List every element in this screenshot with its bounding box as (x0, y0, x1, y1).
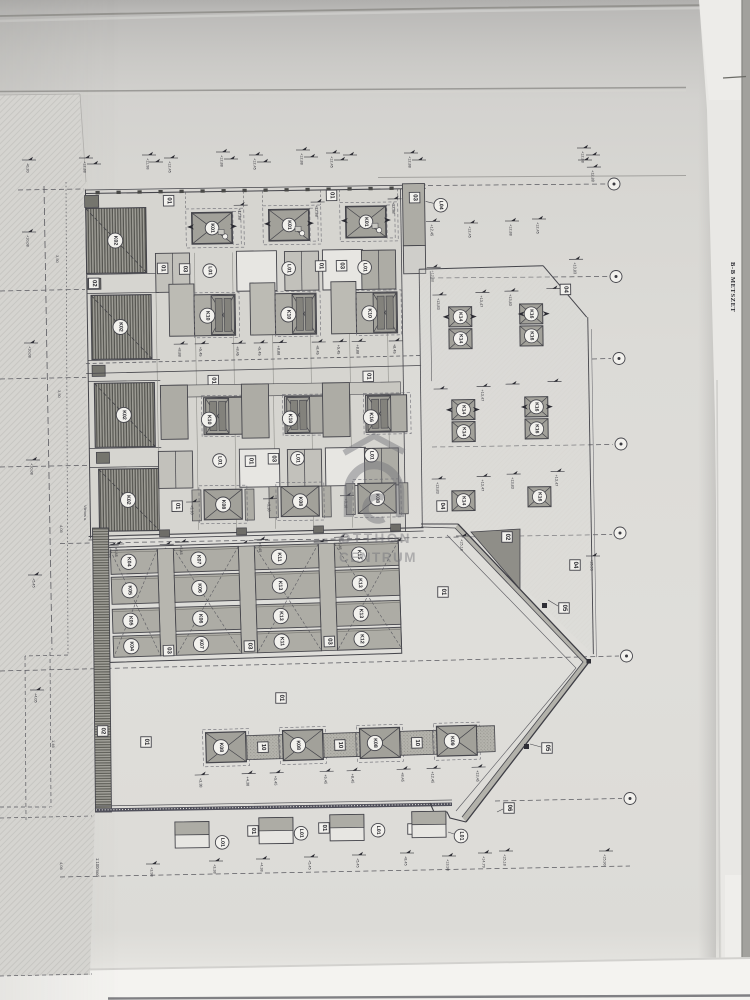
svg-text:+8,45: +8,45 (404, 856, 408, 866)
svg-text:+13,98: +13,98 (446, 859, 450, 871)
svg-text:L01: L01 (219, 838, 225, 847)
svg-text:K10: K10 (285, 310, 291, 320)
svg-text:L01: L01 (458, 832, 464, 841)
svg-text:K04: K04 (125, 557, 131, 567)
svg-text:K09: K09 (449, 736, 455, 746)
svg-text:K13: K13 (357, 578, 363, 588)
svg-text:K01: K01 (363, 217, 369, 227)
svg-text:K16: K16 (534, 424, 540, 433)
svg-text:+8,88: +8,88 (355, 344, 359, 354)
svg-text:10: 10 (260, 744, 266, 752)
svg-text:K08: K08 (372, 738, 378, 748)
svg-text:L01: L01 (298, 829, 304, 838)
svg-text:L01: L01 (216, 456, 222, 465)
svg-text:+12,45: +12,45 (430, 224, 434, 236)
svg-text:1,46: 1,46 (51, 740, 56, 749)
svg-text:K07: K07 (195, 555, 201, 565)
svg-text:+13,47: +13,47 (554, 475, 558, 487)
svg-text:+5,45: +5,45 (198, 347, 202, 357)
svg-text:K10: K10 (287, 414, 293, 424)
svg-text:Vilmos u.: Vilmos u. (83, 505, 88, 521)
svg-text:+3,18: +3,18 (190, 505, 194, 515)
svg-text:+12,88: +12,88 (237, 208, 241, 220)
svg-text:K13: K13 (278, 611, 284, 621)
svg-text:K11: K11 (278, 637, 284, 647)
svg-text:01: 01 (365, 373, 371, 380)
svg-text:+3,98: +3,98 (150, 867, 154, 877)
svg-text:+12,88: +12,88 (220, 155, 224, 167)
svg-text:CENTRUM: CENTRUM (339, 550, 417, 565)
svg-text:+15,18: +15,18 (460, 539, 464, 551)
svg-text:+5,45: +5,45 (356, 858, 360, 868)
svg-text:K13: K13 (277, 581, 283, 591)
svg-text:K08: K08 (220, 500, 226, 510)
svg-text:+12,88: +12,88 (83, 161, 87, 173)
svg-text:L04: L04 (438, 201, 444, 210)
svg-text:+4,38: +4,38 (245, 777, 249, 787)
svg-text:04: 04 (572, 562, 578, 569)
svg-text:K16: K16 (536, 492, 542, 501)
svg-text:+4,05: +4,05 (34, 693, 38, 703)
svg-text:01: 01 (143, 739, 149, 746)
svg-text:+13,83: +13,83 (510, 477, 514, 489)
svg-text:+13,47: +13,47 (480, 479, 484, 491)
svg-text:+12,88: +12,88 (509, 224, 513, 236)
svg-text:B-B METSZET: B-B METSZET (729, 262, 736, 313)
svg-text:OTTHON: OTTHON (340, 531, 412, 546)
svg-text:+8,45: +8,45 (392, 344, 396, 354)
svg-text:+10,08: +10,08 (28, 346, 32, 358)
svg-text:+12,88: +12,88 (408, 156, 412, 168)
svg-text:+13,83: +13,83 (436, 298, 440, 310)
svg-text:4,06: 4,06 (59, 862, 64, 871)
svg-text:+12,45: +12,45 (468, 226, 472, 238)
svg-text:03: 03 (270, 455, 276, 462)
svg-text:+12,45: +12,45 (330, 156, 334, 168)
svg-text:+8,45: +8,45 (400, 772, 404, 782)
svg-text:K01: K01 (209, 223, 215, 233)
svg-text:K16: K16 (528, 309, 534, 318)
svg-text:K14: K14 (457, 312, 463, 321)
svg-text:+15,18: +15,18 (503, 854, 507, 866)
svg-text:05: 05 (544, 745, 550, 752)
svg-text:K10: K10 (366, 308, 372, 318)
svg-text:+5,45: +5,45 (32, 578, 36, 588)
svg-text:+3,38: +3,38 (213, 864, 217, 874)
svg-text:+8,45: +8,45 (235, 346, 239, 356)
svg-text:02: 02 (504, 534, 510, 541)
svg-text:+11,98: +11,98 (146, 158, 150, 169)
svg-text:01: 01 (329, 192, 335, 199)
svg-text:01: 01 (321, 825, 327, 832)
svg-text:+5,45: +5,45 (257, 346, 261, 356)
svg-text:L01: L01 (362, 263, 368, 272)
svg-text:K04: K04 (128, 641, 134, 651)
svg-text:+3,18: +3,18 (267, 502, 271, 512)
svg-text:K02: K02 (125, 495, 131, 505)
svg-text:K08: K08 (297, 497, 303, 507)
svg-text:+3,38: +3,38 (198, 778, 202, 788)
svg-text:01: 01 (210, 377, 216, 384)
svg-text:10: 10 (337, 742, 343, 750)
svg-text:K14: K14 (457, 334, 463, 343)
svg-text:+12,88: +12,88 (300, 153, 304, 165)
svg-text:04: 04 (562, 286, 568, 293)
svg-text:L01: L01 (294, 454, 300, 463)
svg-text:+13,47: +13,47 (480, 389, 484, 401)
svg-text:K10: K10 (206, 415, 212, 425)
svg-text:03: 03 (326, 638, 332, 646)
svg-text:L01: L01 (368, 451, 374, 460)
svg-text:+12,45: +12,45 (430, 771, 434, 783)
svg-text:K05: K05 (127, 616, 133, 626)
svg-text:+12,88: +12,88 (590, 170, 594, 182)
svg-text:K14: K14 (460, 496, 466, 505)
svg-text:K06: K06 (197, 614, 203, 624)
svg-text:+5,45: +5,45 (179, 545, 183, 555)
svg-text:01: 01 (250, 828, 256, 835)
svg-text:K10: K10 (204, 311, 210, 321)
svg-text:3,50: 3,50 (57, 390, 62, 399)
svg-text:10: 10 (414, 739, 420, 747)
svg-text:01: 01 (318, 263, 324, 270)
svg-text:+12,88: +12,88 (391, 202, 395, 214)
svg-text:K05: K05 (126, 585, 132, 595)
svg-text:+4,38: +4,38 (260, 862, 264, 872)
svg-text:1:100mod: 1:100mod (95, 858, 100, 877)
svg-text:K16: K16 (533, 402, 539, 411)
svg-text:L01: L01 (207, 266, 213, 275)
svg-text:+12,45: +12,45 (536, 222, 540, 234)
svg-text:K02: K02 (112, 236, 118, 246)
svg-text:4,05: 4,05 (59, 525, 64, 534)
svg-text:02: 02 (100, 728, 106, 735)
svg-text:01: 01 (247, 458, 253, 465)
svg-text:03: 03 (182, 266, 188, 273)
svg-text:K16: K16 (368, 412, 374, 422)
svg-text:+5,45: +5,45 (114, 547, 118, 557)
svg-text:3,50: 3,50 (55, 255, 60, 264)
svg-text:+0,20: +0,20 (26, 163, 30, 173)
svg-text:01: 01 (278, 695, 284, 702)
svg-text:K13: K13 (358, 609, 364, 619)
svg-text:K11: K11 (276, 552, 282, 562)
svg-text:K02: K02 (117, 322, 123, 332)
svg-text:+8,88: +8,88 (276, 346, 280, 356)
svg-text:03: 03 (246, 643, 252, 651)
svg-text:K16: K16 (528, 331, 534, 340)
svg-text:+12,88: +12,88 (581, 151, 585, 163)
svg-text:+8,88: +8,88 (177, 347, 181, 357)
svg-text:+10,08: +10,08 (30, 463, 34, 475)
svg-text:03: 03 (412, 194, 418, 201)
svg-text:01: 01 (440, 589, 446, 596)
svg-text:+5,45: +5,45 (323, 774, 327, 784)
svg-text:K08: K08 (218, 742, 224, 752)
svg-text:K14: K14 (460, 405, 466, 414)
svg-text:+8,45: +8,45 (350, 774, 354, 784)
svg-text:03: 03 (165, 647, 171, 655)
svg-text:K12: K12 (358, 634, 364, 644)
svg-text:01: 01 (160, 265, 166, 272)
svg-text:K01: K01 (286, 220, 292, 230)
svg-text:+5,45: +5,45 (273, 776, 277, 786)
svg-text:05: 05 (561, 605, 567, 612)
svg-text:+12,45: +12,45 (253, 158, 257, 170)
svg-text:+15,93: +15,93 (590, 559, 594, 571)
svg-text:K08: K08 (295, 740, 301, 750)
svg-text:+13,83: +13,83 (435, 482, 439, 494)
svg-text:03: 03 (339, 262, 345, 269)
svg-text:+13,83: +13,83 (508, 294, 512, 306)
svg-text:K06: K06 (196, 583, 202, 593)
svg-text:L01: L01 (286, 264, 292, 273)
svg-text:01: 01 (174, 503, 180, 510)
svg-text:04: 04 (439, 503, 445, 510)
svg-text:02: 02 (91, 280, 97, 287)
svg-text:K14: K14 (461, 427, 467, 436)
svg-text:+13,45: +13,45 (475, 770, 479, 782)
svg-text:+8,45: +8,45 (315, 345, 319, 355)
svg-text:01: 01 (166, 197, 172, 204)
svg-text:+12,45: +12,45 (168, 161, 172, 173)
svg-text:+15,90: +15,90 (603, 854, 607, 866)
svg-text:K02: K02 (121, 410, 127, 420)
svg-text:+5,45: +5,45 (336, 345, 340, 355)
svg-text:+14,79: +14,79 (482, 856, 486, 868)
svg-text:+13,47: +13,47 (479, 295, 483, 307)
svg-text:L01: L01 (375, 826, 381, 835)
svg-text:+5,45: +5,45 (308, 860, 312, 870)
svg-text:+13,83: +13,83 (573, 262, 577, 274)
svg-text:K07: K07 (198, 639, 204, 649)
svg-text:+12,88: +12,88 (314, 205, 318, 217)
svg-text:+5,45: +5,45 (258, 543, 262, 553)
svg-text:06: 06 (506, 805, 512, 812)
svg-text:+10,08: +10,08 (26, 235, 30, 247)
